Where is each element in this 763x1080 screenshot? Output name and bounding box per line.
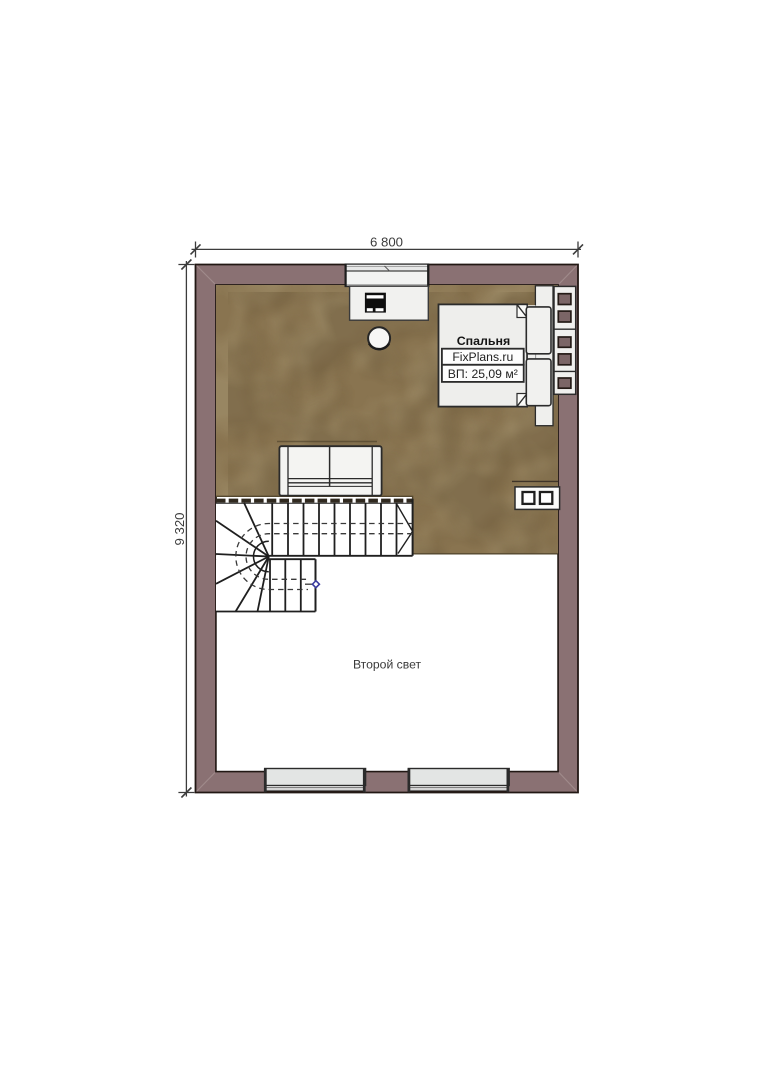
- svg-text:Спальня: Спальня: [457, 334, 511, 348]
- svg-text:6 800: 6 800: [370, 234, 403, 249]
- svg-text:ВП: 25,09 м²: ВП: 25,09 м²: [448, 367, 518, 381]
- svg-text:Второй свет: Второй свет: [353, 657, 422, 671]
- svg-text:FixPlans.ru: FixPlans.ru: [452, 350, 513, 364]
- svg-text:9 320: 9 320: [172, 512, 187, 545]
